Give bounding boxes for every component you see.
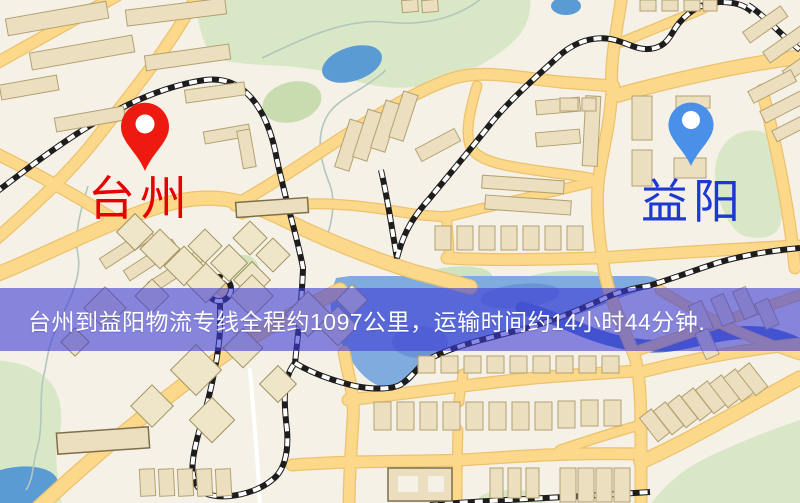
route-info-banner: 台州到益阳物流专线全程约1097公里，运输时间约14小时44分钟. [0, 288, 800, 351]
destination-city-label: 益阳 [641, 180, 745, 227]
destination-pin-hole [682, 111, 700, 129]
origin-city-label: 台州 [88, 177, 192, 224]
origin-pin-hole [136, 115, 155, 134]
map-screenshot: 台州 益阳 台州到益阳物流专线全程约1097公里，运输时间约14小时44分钟. [0, 0, 800, 503]
route-info-text: 台州到益阳物流专线全程约1097公里，运输时间约14小时44分钟. [28, 303, 705, 337]
map-canvas[interactable] [0, 0, 800, 503]
